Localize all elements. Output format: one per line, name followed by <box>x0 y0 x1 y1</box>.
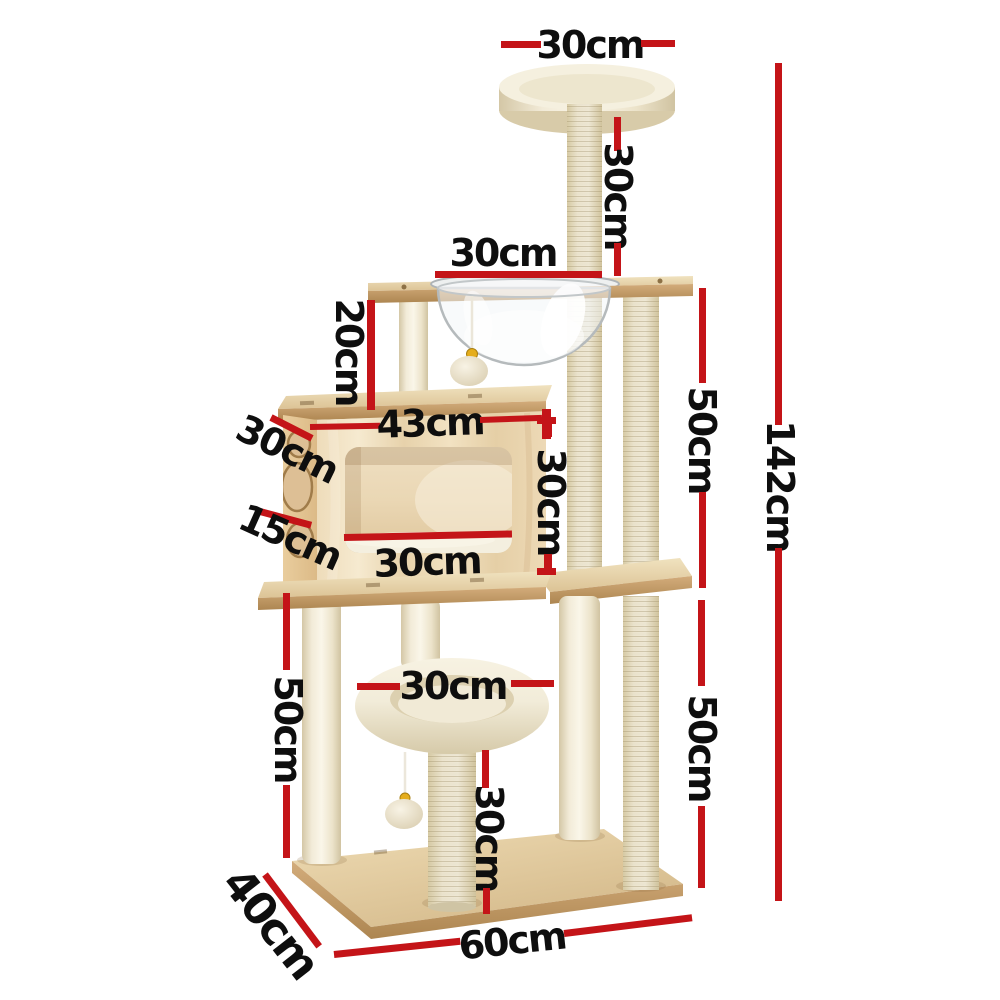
dim-line-right-upper-b <box>699 492 706 588</box>
dim-label-low-post-height: 30cm <box>470 784 508 891</box>
dim-label-low-bed-width: 30cm <box>399 667 506 705</box>
dim-line-condo-height-botcap <box>537 568 556 575</box>
dim-label-right-upper-height: 50cm <box>683 386 721 493</box>
dim-line-condo-height-topstub <box>544 424 552 437</box>
dim-label-base-width: 60cm <box>457 917 567 966</box>
dim-line-total-b <box>775 548 782 901</box>
dim-line-bed-right <box>511 680 554 687</box>
dim-line-condo-height-topcap <box>537 417 556 424</box>
dim-line-left-lower-a <box>283 593 290 670</box>
dim-label-right-lower-height: 50cm <box>683 694 721 801</box>
dim-line-top-post-b <box>614 243 621 276</box>
dim-line-left-lower-b <box>283 785 290 858</box>
dim-line-bed-left <box>357 683 400 690</box>
dim-line-20cm <box>367 300 375 410</box>
dim-line-base-width-left <box>334 938 461 958</box>
dim-label-condo-width: 43cm <box>376 402 484 444</box>
dim-label-left-lower-height: 50cm <box>269 675 307 782</box>
dim-label-top-post-height: 30cm <box>599 142 637 249</box>
dim-line-right-lower-a <box>698 600 705 686</box>
product-dimension-diagram: 30cm 30cm 30cm 20cm 30cm 43cm 30cm 15cm … <box>0 0 1000 1000</box>
dim-label-opening-width: 30cm <box>373 541 481 583</box>
dim-label-left-upper-post: 20cm <box>330 298 368 405</box>
dim-line-base-width-right <box>564 914 693 937</box>
dim-label-top-bed-width: 30cm <box>536 26 643 64</box>
dim-line-right-upper-a <box>699 288 706 383</box>
dim-label-platform-width: 30cm <box>449 234 556 272</box>
dim-line-total-a <box>775 63 782 425</box>
dim-line-condo-height-botstub <box>544 554 552 568</box>
dim-label-condo-depth: 30cm <box>231 408 344 489</box>
dim-label-condo-height: 30cm <box>532 448 570 555</box>
dim-line-top-right-dash <box>641 40 675 47</box>
dim-line-low-post-b <box>483 888 490 914</box>
dim-line-low-post-a <box>482 750 489 788</box>
dim-label-total-height: 142cm <box>761 420 799 551</box>
dim-line-top-left-dash <box>501 41 541 48</box>
dimension-annotations: 30cm 30cm 30cm 20cm 30cm 43cm 30cm 15cm … <box>0 0 1000 1000</box>
dim-line-43-right <box>480 415 542 423</box>
dim-line-right-lower-b <box>698 806 705 888</box>
dim-line-43-left <box>310 423 380 430</box>
dim-label-condo-left-height: 15cm <box>233 498 346 576</box>
dim-line-platform <box>435 271 602 278</box>
